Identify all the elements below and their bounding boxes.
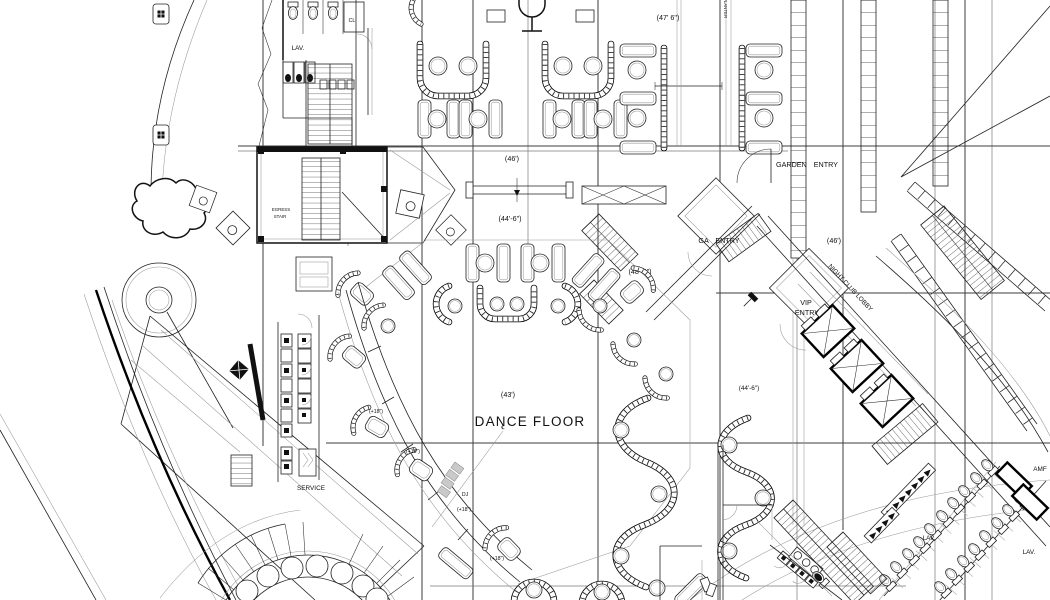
planter-label: PLANTER xyxy=(723,0,728,18)
vip-entry-label-1: VIP xyxy=(800,298,812,307)
dance-floor-label: DANCE FLOOR xyxy=(475,414,586,429)
dim-vip-walk: (44'-6") xyxy=(739,385,760,392)
floor-plan-drawing: LAV. CL EGRESS STAIR SERVICE xyxy=(0,0,1050,600)
egress-stair-label-2: STAIR xyxy=(274,214,287,219)
garden-entry-label: GARDEN ENTRY xyxy=(776,160,838,169)
platform-height-dj: (+18") xyxy=(457,507,471,513)
dim-ga-walk: (46') xyxy=(827,236,841,245)
service-label: SERVICE xyxy=(297,485,325,492)
ga-entry-label: GA ENTRY xyxy=(698,236,739,245)
vip-entry-label-2: ENTRY xyxy=(795,308,819,317)
dim-dance-floor: (43') xyxy=(501,390,515,399)
lavatory-right-label-b: LAV. xyxy=(1023,549,1036,556)
egress-stair-label-1: EGRESS xyxy=(272,207,290,212)
lavatory-right-label-a: LAV. xyxy=(923,535,936,542)
lavatory-top-label: LAV. xyxy=(292,45,305,52)
platform-height-b: (+18") xyxy=(406,449,420,455)
platform-height-a: (+18") xyxy=(369,409,383,415)
dim-upper-promenade: (44'-6") xyxy=(498,214,521,223)
dim-garden-walk: (46') xyxy=(505,154,519,163)
amphitheater-label: AMF xyxy=(1033,466,1047,473)
floor-plan-canvas: LAV. CL EGRESS STAIR SERVICE xyxy=(0,0,1050,600)
dj-label: DJ xyxy=(462,492,469,498)
dim-top-seating: (47' 6") xyxy=(657,13,680,22)
closet-label: CL xyxy=(349,18,356,24)
platform-height-c: (+18") xyxy=(490,556,504,562)
